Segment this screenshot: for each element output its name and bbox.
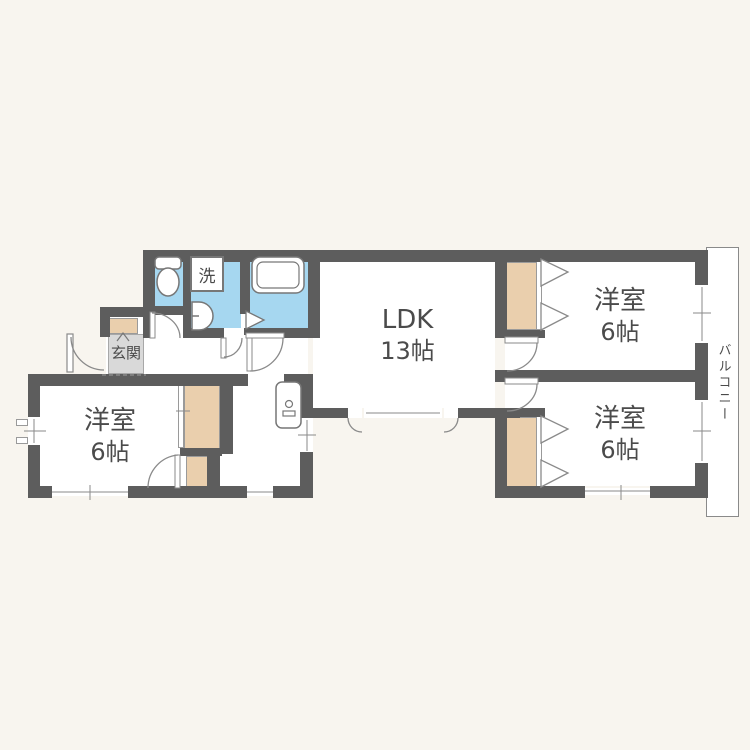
- entrance-door-arc: [71, 337, 104, 370]
- wall: [495, 370, 706, 382]
- bedroom-size: 6帖: [90, 437, 129, 467]
- genkan-text: 玄関: [111, 344, 141, 362]
- window-left-tab: [16, 419, 28, 426]
- window-balcony-bottom: [697, 400, 708, 463]
- wall: [100, 307, 155, 317]
- bedroom-name: 洋室: [84, 405, 136, 438]
- wall: [28, 374, 248, 386]
- wall: [207, 454, 220, 494]
- wall: [496, 408, 545, 417]
- closet-bottom-left-small: [186, 456, 208, 487]
- ldk-terrace-door-arc: [444, 418, 458, 432]
- floor-plan: 洗: [0, 0, 750, 750]
- closet-door-track-bottom: [536, 415, 542, 487]
- wall: [28, 374, 40, 417]
- balcony-text: バルコニー: [714, 343, 733, 423]
- door-gap: [444, 408, 458, 418]
- window-ldk-south: [364, 408, 442, 418]
- window-bottom-right: [585, 488, 650, 495]
- closet-door-track-top: [536, 260, 542, 330]
- window-balcony-top: [697, 285, 708, 343]
- washing-machine-label: 洗: [199, 262, 216, 287]
- wall: [650, 486, 708, 498]
- ldk-name: LDK: [382, 304, 434, 337]
- window-left-tab: [16, 437, 28, 444]
- wall: [695, 343, 708, 400]
- window-bottom-left: [52, 488, 128, 496]
- wall: [695, 250, 708, 285]
- bathroom: [250, 262, 308, 328]
- balcony-label: バルコニー: [708, 318, 738, 448]
- wall: [308, 408, 350, 418]
- wall: [240, 262, 250, 314]
- window-left: [28, 417, 40, 445]
- room-label-bedroom-bottom-right: 洋室 6帖: [545, 382, 695, 486]
- ldk-size: 13帖: [380, 336, 435, 366]
- closet-top-right-room: [505, 262, 537, 330]
- wall: [183, 328, 224, 338]
- wall: [495, 262, 507, 338]
- wall: [28, 486, 52, 498]
- closet-bottom-left-room: [184, 378, 220, 449]
- wall: [505, 330, 545, 338]
- wall: [128, 486, 247, 498]
- window-kitchen-east: [302, 418, 313, 452]
- shoe-cabinet: [108, 318, 138, 334]
- window-kitchen-bottom: [247, 488, 273, 496]
- door-gap: [348, 408, 362, 418]
- room-label-bedroom-bottom-left: 洋室 6帖: [40, 386, 180, 486]
- wall: [244, 328, 284, 335]
- wall: [495, 486, 585, 498]
- bedroom-size: 6帖: [600, 435, 639, 465]
- bedroom-size: 6帖: [600, 317, 639, 347]
- toilet-room: [152, 262, 183, 308]
- wall: [143, 250, 155, 338]
- wall: [282, 328, 320, 338]
- wall: [220, 374, 233, 454]
- closet-bottom-right-room: [505, 417, 537, 487]
- room-label-ldk: LDK 13帖: [320, 262, 495, 408]
- wall: [143, 250, 708, 262]
- ldk-terrace-door-arc: [348, 418, 362, 432]
- room-label-bedroom-top-right: 洋室 6帖: [545, 262, 695, 370]
- entrance-door-leaf: [67, 334, 73, 372]
- bedroom-name: 洋室: [594, 403, 646, 436]
- washing-machine: 洗: [190, 256, 224, 292]
- bedroom-name: 洋室: [594, 285, 646, 318]
- wall: [495, 410, 507, 488]
- genkan-label: 玄関: [106, 344, 146, 363]
- wall: [300, 452, 313, 498]
- wall: [308, 250, 320, 338]
